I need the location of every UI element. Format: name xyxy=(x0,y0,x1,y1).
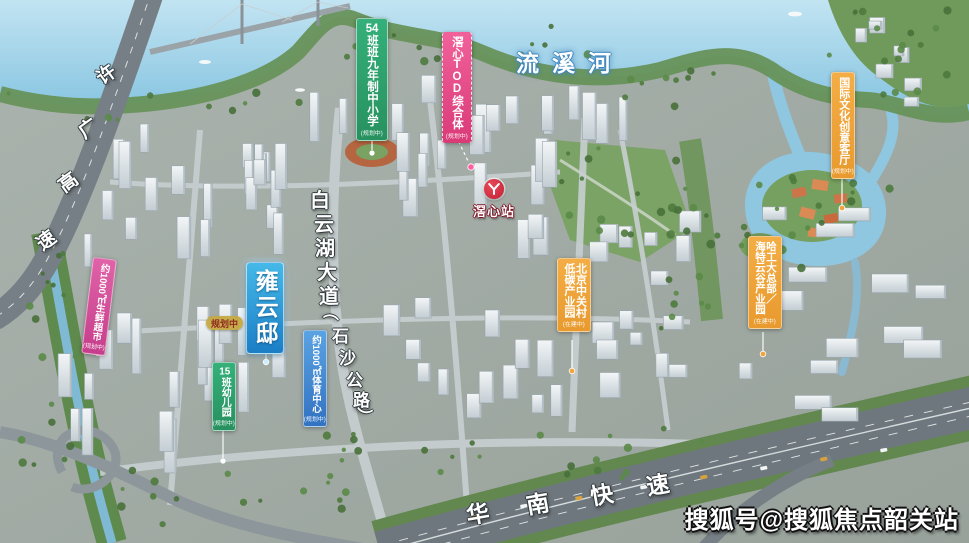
creative-hub-text: 国际文化创意客厅 xyxy=(837,77,849,165)
creative-hub-status: (规划中) xyxy=(832,169,854,175)
label-kindergarten: 15班幼儿园 (规划中) xyxy=(212,362,236,431)
tod-label-text: 滘心TOD综合体 xyxy=(451,36,463,130)
school-class-count: 54 xyxy=(366,23,378,35)
supermarket-text: 约1000㎡生鲜超市 xyxy=(90,263,109,342)
zgc-status: (在建中) xyxy=(563,322,585,328)
label-school: 54班班九年制中小学 (规划中) xyxy=(356,18,388,141)
metro-station-name: 滘心站 xyxy=(473,201,515,220)
zgc-col1: 北京中关村 xyxy=(574,263,586,318)
metro-logo-icon xyxy=(484,179,504,199)
label-hit-haite-park: 哈工大总部／ 海特云谷产业园 (在建中) xyxy=(748,236,782,329)
sports-center-text: 约1000㎡体育中心 xyxy=(310,335,320,413)
hit-status: (在建中) xyxy=(754,318,776,324)
kindergarten-text: 班幼儿园 xyxy=(219,377,230,417)
hit-col1: 哈工大总部／ xyxy=(765,241,776,315)
planning-pill-text: 规划中 xyxy=(211,317,238,330)
school-status: (规划中) xyxy=(361,130,383,136)
kindergarten-status: (规划中) xyxy=(213,421,235,427)
label-tod-complex: 滘心TOD综合体 (规划中) xyxy=(442,32,472,143)
river-name-label: 流溪河 xyxy=(516,44,624,78)
project-name-text: 雍云邸 xyxy=(253,269,277,347)
label-project-yongyundi: 雍云邸 xyxy=(246,262,284,354)
aerial-masterplan-map: 流溪河 54班班九年制中小学 (规划中) 滘心TOD综合体 (规划中) 国际文化… xyxy=(0,0,969,543)
kindergarten-class-count: 15 xyxy=(219,367,230,377)
planning-status-pill: 规划中 xyxy=(206,316,243,330)
label-sports-center: 约1000㎡体育中心 (规划中) xyxy=(303,330,327,427)
label-creative-hub: 国际文化创意客厅 (规划中) xyxy=(831,72,855,179)
label-zgc-low-carbon-park: 北京中关村 低碳产业园 (在建中) xyxy=(557,258,591,332)
watermark-sohu: 搜狐号@搜狐焦点韶关站 xyxy=(685,500,959,535)
sports-center-status: (规划中) xyxy=(304,417,326,423)
tod-status: (规划中) xyxy=(446,133,468,139)
aerial-map-render xyxy=(0,0,969,543)
zgc-col2: 低碳产业园 xyxy=(562,263,574,318)
school-label-text: 班班九年制中小学 xyxy=(366,35,378,127)
hit-col2: 海特云谷产业园 xyxy=(754,241,765,315)
supermarket-status: (规划中) xyxy=(83,343,105,352)
